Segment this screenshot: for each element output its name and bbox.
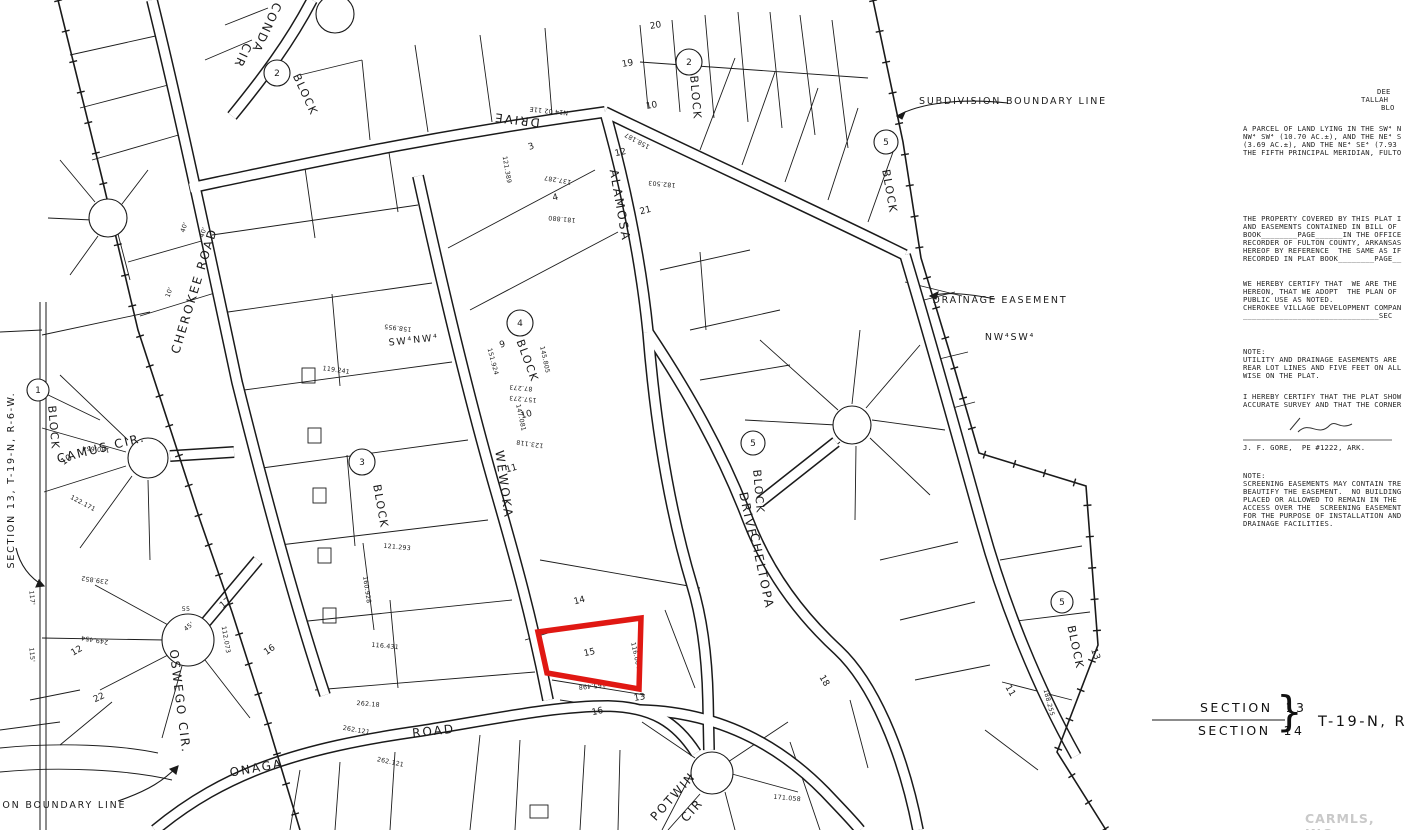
dim-label: 158.955 [384,322,412,332]
dim-label: 151.924 [486,347,500,375]
block-label: BLOCK [514,338,541,384]
margin-text-line: WISE ON THE PLAT. [1243,372,1320,380]
lot-label: 14 [573,595,587,608]
dim-label: 262.121 [376,756,404,769]
lot-label: 11 [505,463,519,476]
dim-label: 160.928 [361,576,372,604]
lot-label: 13 [1088,647,1101,661]
lot-label: 10 [645,100,658,112]
margin-text-line: } [1276,690,1305,734]
dim-label: 55 [182,606,190,613]
roads [152,0,1076,830]
dim-label: 145.805 [538,346,551,374]
margin-text-line: ACCURATE SURVEY AND THAT THE CORNER [1243,401,1401,409]
dim-label: 116.431 [371,642,399,651]
dim-label: 157.273 [509,394,537,403]
block-label: BLOCK [370,483,391,529]
lot-label: 16 [591,706,605,718]
margin-text-line: RECORDED IN PLAT BOOK________PAGE__ [1243,255,1401,263]
plat-map-svg: CHEROKEE ROADCONDACIRCAMUS CIR.OSWEGO CI… [0,0,1405,830]
dim-label: N14 02 11E [529,105,568,116]
dim-label: 262.18 [356,700,380,709]
signature-mark [1243,418,1392,440]
lot-label: 20 [649,20,662,32]
cul-de-sac-circles [89,0,871,794]
lot-label: 11 [1003,684,1017,699]
dim-label: 121.389 [501,156,513,184]
dim-label: 239.852 [81,574,109,585]
margin-text-line: THE FIFTH PRINCIPAL MERIDIAN, FULTO [1243,149,1401,157]
dim-label: 10' [165,286,175,298]
dim-label: 40' [180,221,190,233]
block-label: BLOCK [687,75,704,120]
dim-label: 119.241 [322,365,350,376]
dim-label: 171.058 [773,794,801,803]
lot-label: 3 [527,141,536,152]
anno-label: SUBDIVISION BOUNDARY LINE [919,96,1107,107]
dim-label: 121.293 [383,543,411,552]
margin-text-line: DRAINAGE FACILITIES. [1243,520,1334,528]
lot-label: 21 [639,205,653,217]
dim-label: 182.503 [648,179,676,188]
lot-label: 13 [633,692,646,704]
block-label: BLOCK [1064,624,1086,670]
lot-label: 18 [817,674,832,689]
lot-label: 15 [583,647,596,659]
margin-text-line: BLO [1381,104,1395,112]
anno-label: NW⁴SW⁴ [985,332,1035,343]
block-number: 3 [359,458,365,468]
road-label: CIR [231,41,255,71]
block-number: 5 [750,439,756,449]
dim-label: 262.121 [342,725,370,737]
block-label: BLOCK [290,72,321,118]
road-label: CIR [678,796,706,825]
dim-label: 147.081 [514,404,527,432]
anno-label: DRAINAGE EASEMENT [933,295,1068,306]
margin-text-line: T-19-N, R- [1318,715,1405,730]
anno-label: SECTION 13, T-19-N, R-6-W. [6,392,17,569]
dim-label: 137.287 [544,174,572,186]
plat-map-page: CHEROKEE ROADCONDACIRCAMUS CIR.OSWEGO CI… [0,0,1405,830]
lot-label: 16 [262,643,277,658]
dim-label: 117' [27,590,35,605]
lot-label: 12 [614,147,627,159]
dim-label: 87.273 [509,383,533,392]
block-number: 5 [883,138,889,148]
block-number: 2 [274,69,280,79]
lot-label: 9 [498,339,506,350]
dim-label: 115' [27,647,35,662]
margin-text-line: ______________________________SEC [1243,312,1392,320]
dim-label: 181.880 [548,214,576,223]
lot-label: 4 [551,192,559,203]
block-number: 2 [686,58,692,68]
block-number: 5 [1059,598,1065,608]
lot-label: 19 [621,58,634,70]
lot-label: 22 [92,691,107,705]
block-number: 4 [517,319,523,329]
block-label: BLOCK [45,405,62,450]
dim-label: 122.171 [69,494,97,513]
road-label: ROAD [411,722,455,740]
anno-label: ION BOUNDARY LINE [0,800,126,811]
block-label: BLOCK [879,168,900,214]
margin-text-line: J. F. GORE, PE #1222, ARK. [1243,444,1365,452]
watermark: CARMLS, INC [1305,811,1405,830]
dim-label: 112.073 [220,626,232,654]
block-number: 1 [35,386,41,396]
lot-label: 12 [70,644,85,658]
dim-label: 123.118 [516,438,544,449]
anno-label: SW⁴NW⁴ [388,332,439,348]
dim-label: 249.454 [81,634,109,646]
